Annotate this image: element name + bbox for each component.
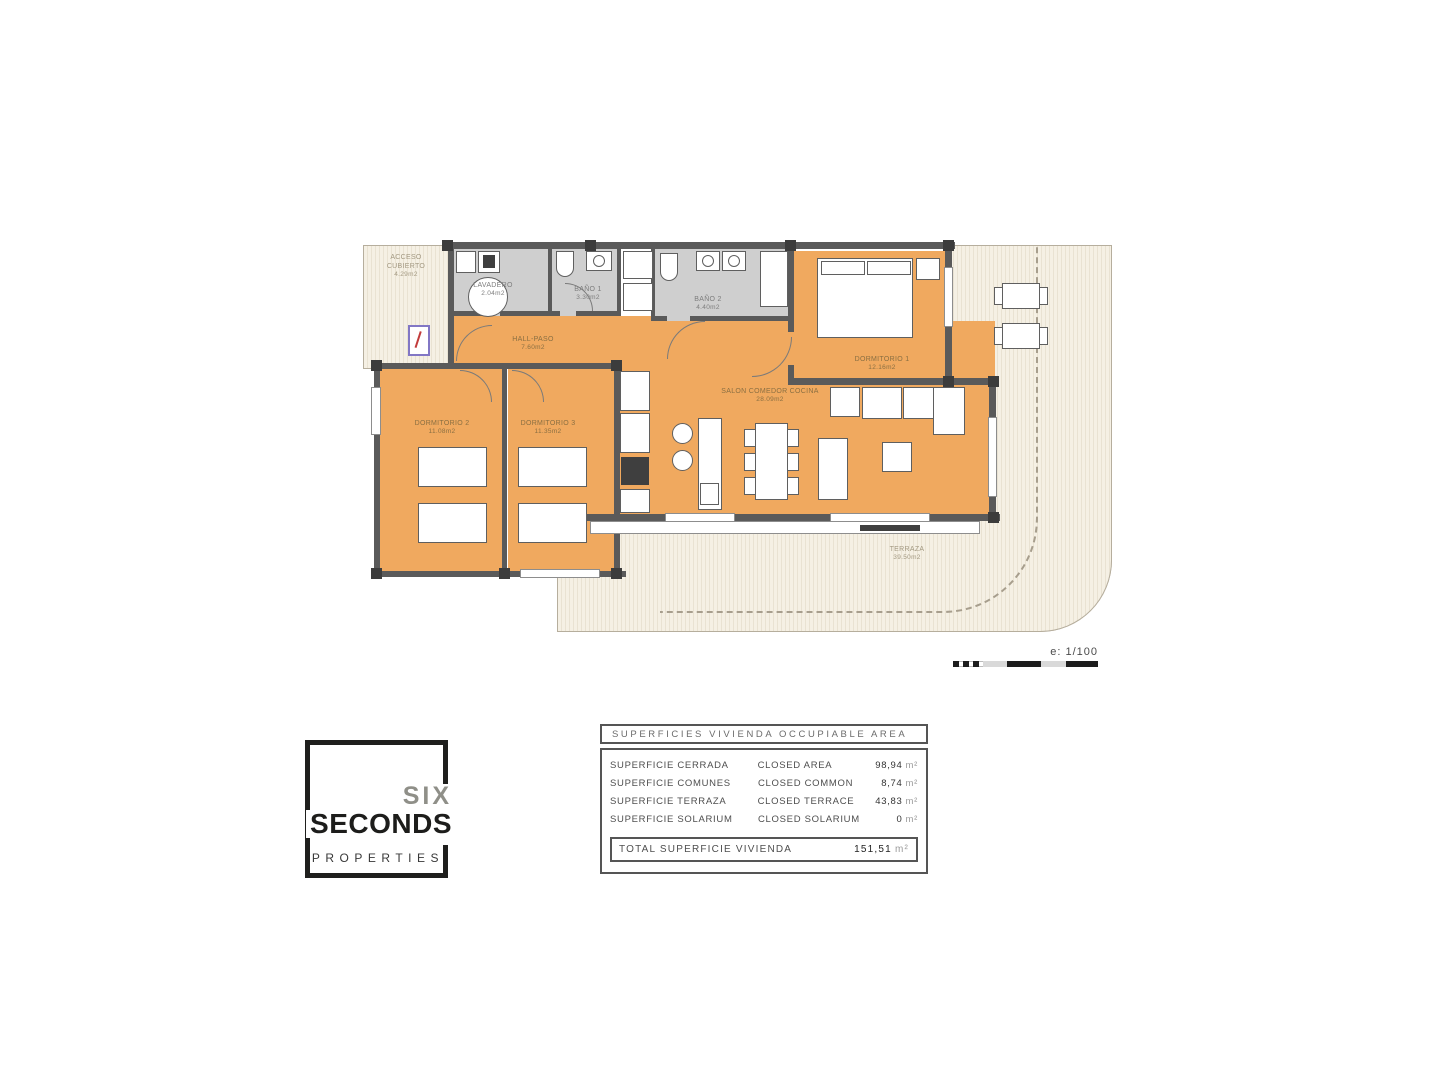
dining-chair xyxy=(787,453,799,471)
row-label-es: SUPERFICIE CERRADA xyxy=(610,760,758,771)
window-bedroom1-right xyxy=(944,267,953,327)
areas-table-title: SUPERFICIES VIVIENDA OCCUPIABLE AREA xyxy=(600,724,928,744)
table-row: SUPERFICIE SOLARIUM CLOSED SOLARIUM 0 m² xyxy=(610,814,918,825)
room-area: 39.50m2 xyxy=(890,554,925,562)
pillar xyxy=(442,240,453,251)
room-name: LAVADERO xyxy=(473,282,513,289)
six-seconds-properties-logo: SIX SECONDS PROPERTIES xyxy=(305,740,448,878)
room-area: 4.40m2 xyxy=(694,304,721,312)
areas-table: SUPERFICIES VIVIENDA OCCUPIABLE AREA SUP… xyxy=(600,724,928,874)
dining-chair xyxy=(787,477,799,495)
toilet-bath1 xyxy=(556,251,574,277)
room-name: BAÑO 1 xyxy=(574,286,601,293)
room-area: 3.30m2 xyxy=(574,294,601,302)
nightstand xyxy=(916,258,940,280)
logo-frame-bottom xyxy=(305,873,448,878)
pillar xyxy=(611,568,622,579)
pillar xyxy=(943,376,954,387)
dining-chair xyxy=(787,429,799,447)
shower-bath2 xyxy=(760,251,788,307)
coffee-table xyxy=(882,442,912,472)
logo-frame-top xyxy=(305,740,448,745)
pillar xyxy=(988,376,999,387)
sofa-chaise xyxy=(933,387,965,435)
terrace-step xyxy=(860,525,920,531)
pillar xyxy=(611,360,622,371)
row-value: 43,83 xyxy=(875,796,902,807)
row-unit: m² xyxy=(906,814,918,825)
row-unit: m² xyxy=(906,796,918,807)
sofa-seat xyxy=(818,438,848,500)
terrace-table xyxy=(1002,323,1040,349)
row-label-es: SUPERFICIE COMUNES xyxy=(610,778,758,789)
room-area: 28.09m2 xyxy=(721,396,818,404)
scale-bar-segment xyxy=(1041,661,1066,667)
kitchen-cabinet xyxy=(620,371,650,411)
logo-text-properties: PROPERTIES xyxy=(312,852,444,864)
room-label-salon: SALON COMEDOR COCINA 28.09m2 xyxy=(721,387,818,405)
entrance-sign xyxy=(408,325,430,356)
bed-single xyxy=(418,447,487,487)
row-label-en: CLOSED AREA xyxy=(758,760,876,771)
room-label-acceso: ACCESO CUBIERTO 4.29m2 xyxy=(377,253,435,280)
wall-laundry-bottom-b xyxy=(500,311,560,316)
room-name: DORMITORIO 3 xyxy=(521,420,576,427)
wall-living-bottom xyxy=(557,514,1000,521)
room-name: TERRAZA xyxy=(890,546,925,553)
row-value: 8,74 xyxy=(876,778,903,789)
wall-bedroom1-left-b xyxy=(788,365,794,385)
table-row: SUPERFICIE COMUNES CLOSED COMMON 8,74 m² xyxy=(610,778,918,789)
kitchen-sink xyxy=(700,483,719,505)
wall-bath2-bottom-a xyxy=(655,316,667,321)
row-label-en: CLOSED SOLARIUM xyxy=(758,814,876,825)
closet-upper xyxy=(623,251,653,279)
wall-bath2-bottom-b xyxy=(690,316,793,321)
room-name: DORMITORIO 1 xyxy=(855,356,910,363)
wall-bedroom1-bottom xyxy=(788,378,996,385)
room-name: DORMITORIO 2 xyxy=(415,420,470,427)
room-label-dorm1: DORMITORIO 1 12.16m2 xyxy=(855,355,910,373)
bed-pillow xyxy=(867,261,911,275)
room-label-terraza: TERRAZA 39.50m2 xyxy=(890,545,925,563)
terrace-table xyxy=(1002,283,1040,309)
scale-indicator: e: 1/100 xyxy=(953,646,1098,667)
washing-machine-drum xyxy=(483,255,495,268)
room-label-lavadero: LAVADERO 2.04m2 xyxy=(473,281,513,299)
row-unit: m² xyxy=(906,760,918,771)
pillar xyxy=(371,568,382,579)
sofa-cushion xyxy=(862,387,902,419)
row-label-es: SUPERFICIE TERRAZA xyxy=(610,796,758,807)
scale-bar-segment xyxy=(1007,661,1041,667)
sink-bath1-bowl xyxy=(593,255,605,267)
kitchen-hob xyxy=(621,457,649,485)
stool-round xyxy=(672,423,693,444)
room-area: 11.08m2 xyxy=(415,428,470,436)
scale-bar-segment xyxy=(983,661,1007,667)
pillar xyxy=(943,240,954,251)
page: ACCESO CUBIERTO 4.29m2 LAVADERO 2.04m2 B… xyxy=(0,0,1440,1080)
sink-bath2-b-bowl xyxy=(728,255,740,267)
bed-single xyxy=(518,447,587,487)
wall-bedrooms-top xyxy=(374,363,620,369)
wall-bath1-bottom xyxy=(576,311,621,316)
dining-table xyxy=(755,423,788,500)
total-unit: m² xyxy=(895,844,909,855)
room-label-dorm3: DORMITORIO 3 11.35m2 xyxy=(521,419,576,437)
room-name: HALL-PASO xyxy=(512,336,553,343)
logo-text-seconds: SECONDS xyxy=(306,810,452,838)
row-value: 0 xyxy=(876,814,903,825)
stool-round xyxy=(672,450,693,471)
room-area: 11.35m2 xyxy=(521,428,576,436)
logo-text-six: SIX xyxy=(399,784,452,809)
bed-single xyxy=(518,503,587,543)
wall-access-right xyxy=(448,242,454,366)
sofa-cushion xyxy=(830,387,860,417)
room-area: 4.29m2 xyxy=(377,271,435,279)
window-living-right xyxy=(988,417,997,497)
laundry-counter xyxy=(456,251,476,273)
window-bedroom3-bottom xyxy=(520,569,600,578)
room-label-dorm2: DORMITORIO 2 11.08m2 xyxy=(415,419,470,437)
room-area: 7.60m2 xyxy=(512,344,553,352)
pillar xyxy=(585,240,596,251)
room-label-bano1: BAÑO 1 3.30m2 xyxy=(574,285,601,303)
room-area: 12.16m2 xyxy=(855,364,910,372)
room-name: BAÑO 2 xyxy=(694,296,721,303)
wall-top xyxy=(445,242,955,249)
row-label-en: CLOSED COMMON xyxy=(758,778,876,789)
total-label: TOTAL SUPERFICIE VIVIENDA xyxy=(619,844,792,855)
kitchen-fridge xyxy=(620,413,650,453)
room-name: SALON COMEDOR COCINA xyxy=(721,388,818,395)
row-label-en: CLOSED TERRACE xyxy=(758,796,876,807)
scale-bar xyxy=(953,661,1098,667)
areas-table-body: SUPERFICIE CERRADA CLOSED AREA 98,94 m² … xyxy=(600,748,928,874)
row-unit: m² xyxy=(906,778,918,789)
kitchen-cabinet-low xyxy=(620,489,650,513)
sink-bath2-a-bowl xyxy=(702,255,714,267)
pillar xyxy=(785,240,796,251)
table-total-row: TOTAL SUPERFICIE VIVIENDA 151,51 m² xyxy=(610,837,918,862)
room-area: 2.04m2 xyxy=(473,290,513,298)
wall-laundry-bath1 xyxy=(548,248,552,311)
pillar xyxy=(371,360,382,371)
room-name: ACCESO CUBIERTO xyxy=(387,254,425,270)
entrance-sign-mark xyxy=(415,331,428,350)
room-label-hall: HALL-PASO 7.60m2 xyxy=(512,335,553,353)
scale-label: e: 1/100 xyxy=(953,646,1098,658)
wall-corridor-left xyxy=(617,248,621,316)
window-bedroom2-left xyxy=(371,387,381,435)
table-row: SUPERFICIE CERRADA CLOSED AREA 98,94 m² xyxy=(610,760,918,771)
floor-plan: ACCESO CUBIERTO 4.29m2 LAVADERO 2.04m2 B… xyxy=(360,237,1115,637)
row-label-es: SUPERFICIE SOLARIUM xyxy=(610,814,758,825)
table-row: SUPERFICIE TERRAZA CLOSED TERRACE 43,83 … xyxy=(610,796,918,807)
pillar xyxy=(988,512,999,523)
wall-bedroom-divider xyxy=(502,368,507,577)
pillar xyxy=(499,568,510,579)
total-value: 151,51 xyxy=(792,844,892,855)
scale-bar-segment xyxy=(1066,661,1098,667)
room-label-bano2: BAÑO 2 4.40m2 xyxy=(694,295,721,313)
toilet-bath2 xyxy=(660,253,678,281)
sliding-door-terrace xyxy=(590,521,980,534)
row-value: 98,94 xyxy=(875,760,902,771)
bed-pillow xyxy=(821,261,865,275)
bed-single xyxy=(418,503,487,543)
closet-lower xyxy=(623,283,653,311)
